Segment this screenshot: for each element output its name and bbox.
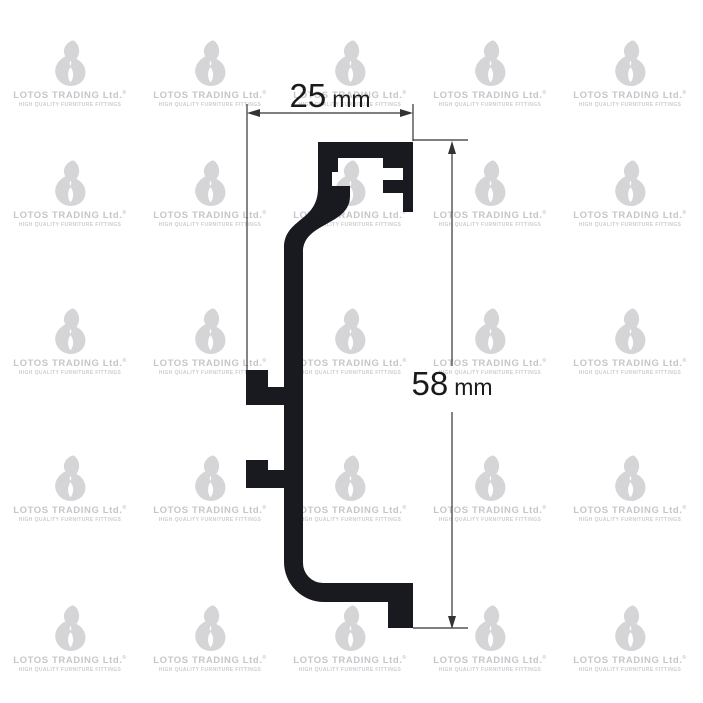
width-dimension-label: 25mm	[247, 79, 413, 113]
diagram-canvas: LOTOS TRADING Ltd.® HIGH QUALITY FURNITU…	[0, 0, 703, 703]
height-unit: mm	[454, 374, 492, 400]
height-value: 58	[411, 365, 448, 402]
width-unit: mm	[332, 86, 370, 112]
height-dimension-label: 58mm	[392, 367, 512, 401]
profile-cross-section	[246, 142, 413, 628]
height-arrow-bottom-icon	[448, 616, 456, 629]
width-value: 25	[289, 77, 326, 114]
height-arrow-top-icon	[448, 141, 456, 154]
